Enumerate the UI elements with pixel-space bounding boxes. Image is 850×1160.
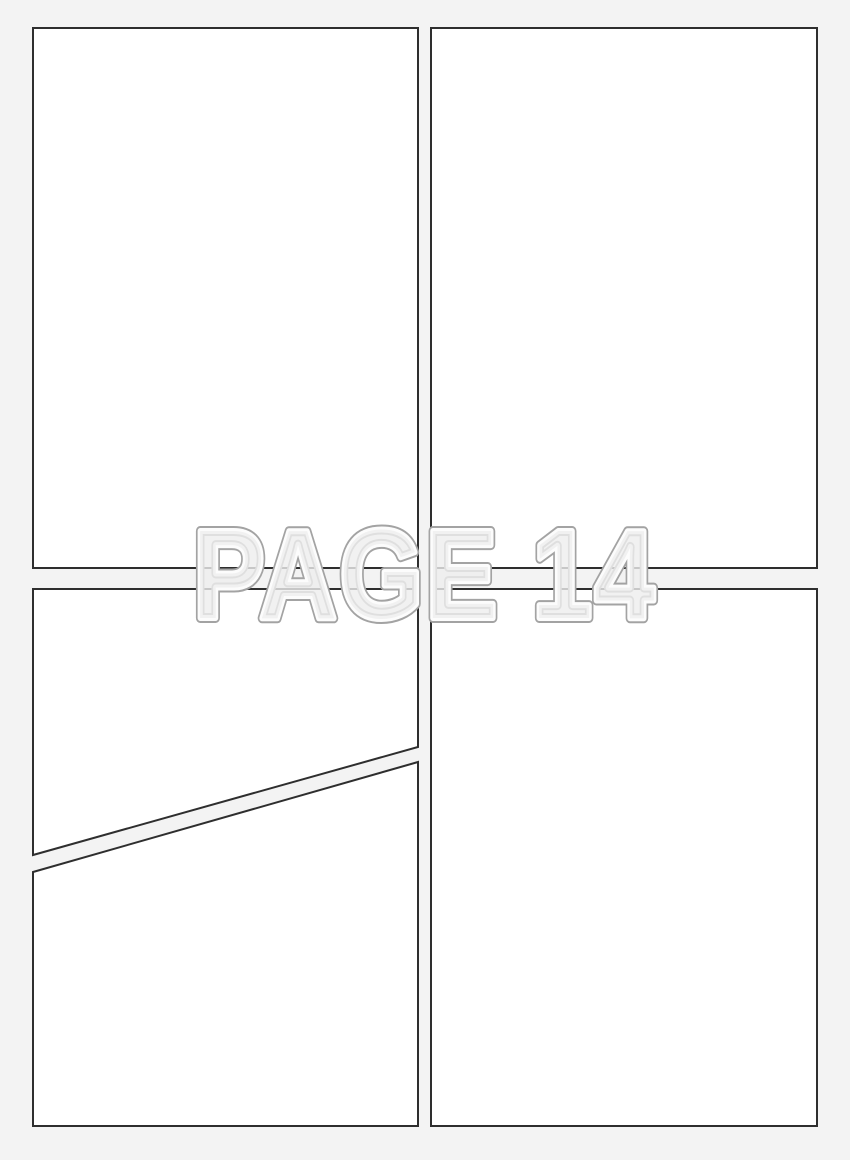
page-label-text: PAGE 14 — [193, 504, 657, 645]
panel-top-left — [33, 28, 418, 568]
page-canvas: PAGE 14 PAGE 14 PAGE 14 — [0, 0, 850, 1160]
panel-bottom-right — [431, 589, 817, 1126]
panel-top-right — [431, 28, 817, 568]
page-label: PAGE 14 PAGE 14 PAGE 14 — [193, 504, 657, 645]
comic-page-template: { "page": { "label": "PAGE 14" }, "color… — [0, 0, 850, 1160]
